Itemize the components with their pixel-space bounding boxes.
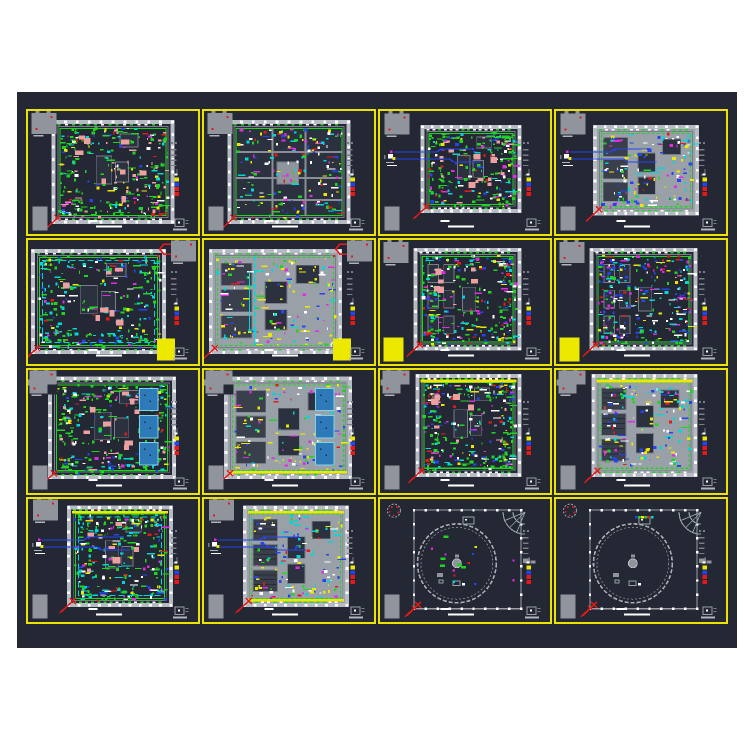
sheet-grid: [26, 109, 728, 624]
floor-plan-drawing-r2c3: [380, 240, 550, 363]
floor-plan-drawing-r1c3: [380, 111, 550, 234]
drawing-canvas[interactable]: [17, 92, 737, 648]
floor-plan-drawing-r3c3: [380, 370, 550, 493]
floor-plan-drawing-r3c2: [204, 370, 374, 493]
sheet-r2c3[interactable]: [378, 238, 552, 365]
sheet-r1c4[interactable]: [554, 109, 728, 236]
floor-plan-drawing-r4c1: [28, 499, 198, 622]
floor-plan-drawing-r1c4: [556, 111, 726, 234]
floor-plan-drawing-r4c3: [380, 499, 550, 622]
sheet-r2c4[interactable]: [554, 238, 728, 365]
floor-plan-drawing-r3c4: [556, 370, 726, 493]
sheet-r3c1[interactable]: [26, 368, 200, 495]
floor-plan-drawing-r1c1: [28, 111, 198, 234]
floor-plan-drawing-r1c2: [204, 111, 374, 234]
sheet-r2c1[interactable]: [26, 238, 200, 365]
sheet-r4c4[interactable]: [554, 497, 728, 624]
sheet-r3c4[interactable]: [554, 368, 728, 495]
page-background: { "view": { "kind": "cad-model-space", "…: [0, 0, 750, 750]
floor-plan-drawing-r2c4: [556, 240, 726, 363]
floor-plan-drawing-r2c2: [204, 240, 374, 363]
floor-plan-drawing-r4c4: [556, 499, 726, 622]
floor-plan-drawing-r4c2: [204, 499, 374, 622]
sheet-r1c1[interactable]: [26, 109, 200, 236]
sheet-r3c3[interactable]: [378, 368, 552, 495]
sheet-r4c2[interactable]: [202, 497, 376, 624]
sheet-r4c1[interactable]: [26, 497, 200, 624]
sheet-r1c3[interactable]: [378, 109, 552, 236]
floor-plan-drawing-r3c1: [28, 370, 198, 493]
sheet-r1c2[interactable]: [202, 109, 376, 236]
sheet-r2c2[interactable]: [202, 238, 376, 365]
floor-plan-drawing-r2c1: [28, 240, 198, 363]
sheet-r3c2[interactable]: [202, 368, 376, 495]
sheet-r4c3[interactable]: [378, 497, 552, 624]
